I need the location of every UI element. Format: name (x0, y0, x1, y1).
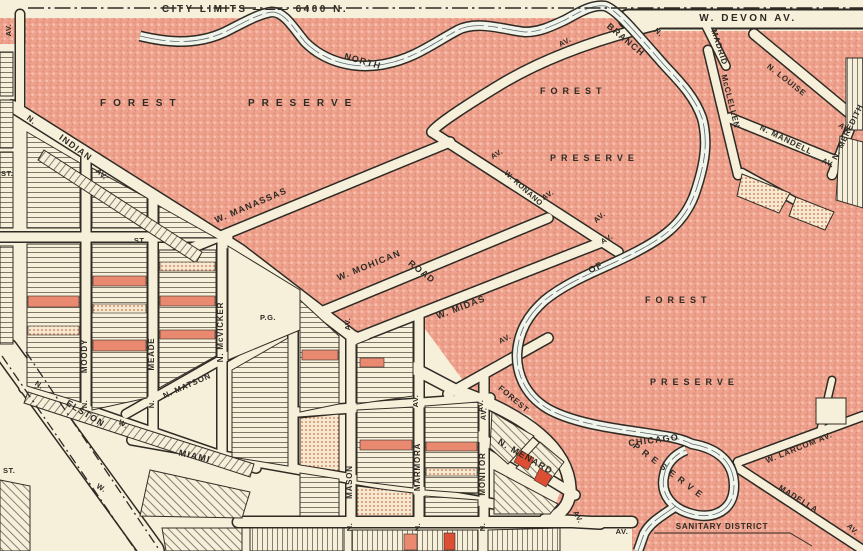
monitor-label: MONITOR (478, 452, 487, 495)
bottom-street-av: AV. (616, 527, 629, 536)
forest-preserve-e-forest: FOREST (645, 295, 712, 305)
marmora-av: AV. (411, 395, 420, 408)
marmora-n: N. (413, 523, 422, 532)
mcvicker-label: N. McVICKER (216, 302, 225, 362)
st-street-label: ST. (134, 236, 146, 245)
left-edge-av: AV. (4, 24, 13, 37)
playground-label: P.G. (260, 313, 276, 322)
meade-n: N. (147, 400, 156, 409)
devon-av-label: W. DEVON AV. (699, 13, 796, 24)
left-edge-st-2: ST. (3, 466, 15, 475)
mason-label: MASON (345, 465, 354, 499)
street-map: CITY LIMITS ——— 6400 N. W. DEVON AV. NOR… (0, 0, 863, 551)
moody-label: MOODY (80, 339, 89, 373)
left-edge-st-1: ST. (1, 169, 13, 178)
forest-preserve-nw-preserve: PRESERVE (248, 98, 358, 109)
marmora-label: MARMORA (413, 443, 422, 491)
mason-av: AV. (343, 318, 352, 331)
forest-preserve-ne-forest: FOREST (540, 86, 607, 96)
forest-street-av: AV. (478, 407, 488, 421)
map-canvas: CITY LIMITS ——— 6400 N. W. DEVON AV. NOR… (0, 0, 863, 551)
sanitary-district-label: SANITARY DISTRICT (676, 522, 769, 531)
forest-preserve-e-preserve: PRESERVE (650, 377, 739, 387)
meade-label: MEADE (147, 338, 156, 371)
monitor-n: N. (478, 523, 487, 532)
forest-preserve-nw-forest: FOREST (100, 98, 183, 109)
forest-preserve-ne-preserve: PRESERVE (550, 153, 639, 163)
city-limits-label: CITY LIMITS ——— 6400 N. (162, 4, 348, 15)
mason-n: N. (345, 523, 354, 532)
